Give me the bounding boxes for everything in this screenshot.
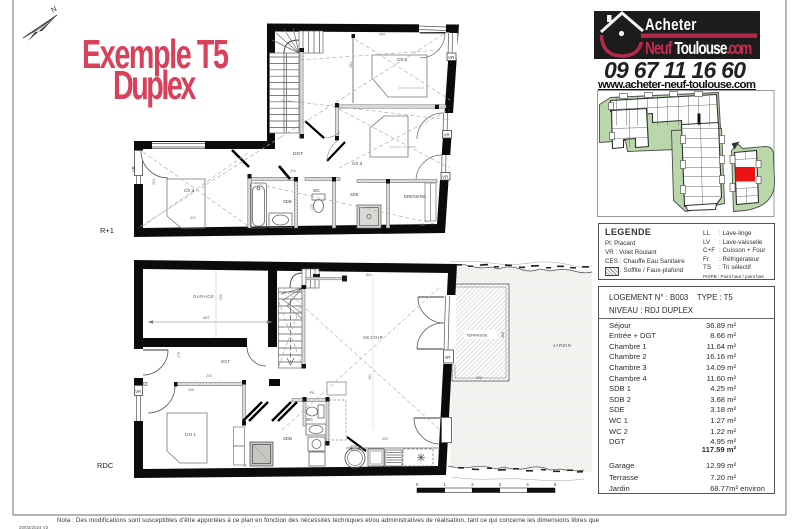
svg-text:1: 1 [444, 482, 447, 487]
svg-text:RDC: RDC [97, 461, 114, 470]
svg-text:WC: WC [306, 417, 313, 422]
svg-text:VR: VR [445, 355, 451, 360]
svg-text:VR: VR [135, 389, 141, 394]
svg-text:250: 250 [219, 294, 223, 300]
svg-text:NeufToulouse.com: NeufToulouse.com [645, 40, 752, 59]
svg-text:461: 461 [368, 374, 372, 380]
svg-text:R+1: R+1 [100, 226, 114, 235]
svg-text:Ch 3: Ch 3 [352, 161, 362, 167]
svg-text:TERRASSE: TERRASSE [466, 333, 488, 338]
svg-text:0: 0 [416, 482, 419, 487]
svg-text:Ch 2: Ch 2 [397, 57, 407, 63]
svg-text:VR: VR [444, 133, 451, 138]
svg-text:801: 801 [366, 273, 372, 277]
svg-text:278: 278 [177, 352, 181, 358]
svg-text:VR: VR [442, 175, 449, 180]
svg-text:3: 3 [499, 482, 502, 487]
svg-text:plafond rampant: plafond rampant [390, 145, 416, 149]
svg-text:368: 368 [188, 388, 194, 392]
svg-text:Acheter: Acheter [645, 16, 697, 35]
svg-text:105: 105 [310, 204, 314, 210]
svg-text:200: 200 [476, 376, 482, 380]
svg-text:5: 5 [554, 482, 557, 487]
svg-text:PL: PL [310, 391, 315, 395]
svg-text:360: 360 [501, 332, 505, 338]
svg-text:SDB: SDB [283, 436, 292, 441]
svg-text:337: 337 [190, 216, 196, 220]
svg-text:plafond rampant: plafond rampant [398, 86, 424, 90]
svg-text:Duplex: Duplex [113, 63, 197, 108]
svg-text:CH 1: CH 1 [185, 432, 196, 438]
svg-text:600: 600 [382, 437, 388, 441]
svg-text:293: 293 [152, 179, 156, 185]
svg-text:4: 4 [526, 482, 529, 487]
svg-text:R: R [244, 464, 247, 468]
svg-text:2: 2 [471, 482, 474, 487]
svg-text:DGT: DGT [221, 359, 230, 364]
svg-text:SDE: SDE [350, 192, 359, 197]
svg-text:DGT: DGT [293, 151, 303, 157]
svg-text:www.acheter-neuf-toulouse.com: www.acheter-neuf-toulouse.com [597, 79, 756, 91]
svg-text:216: 216 [290, 169, 296, 173]
svg-text:400: 400 [379, 33, 385, 37]
svg-text:Ch 4: Ch 4 [184, 188, 194, 194]
svg-text:WC: WC [313, 188, 320, 193]
svg-text:N: N [49, 4, 59, 15]
svg-text:DRESSING: DRESSING [404, 194, 426, 199]
svg-text:195: 195 [419, 223, 425, 227]
svg-text:282: 282 [349, 62, 353, 68]
svg-text:GARAGE: GARAGE [193, 294, 214, 299]
svg-text:VR: VR [131, 166, 136, 172]
svg-text:SDB: SDB [283, 199, 292, 204]
svg-text:VR: VR [448, 55, 455, 60]
svg-text:JARDIN: JARDIN [553, 343, 571, 348]
svg-text:497: 497 [203, 315, 210, 320]
svg-text:200: 200 [206, 374, 212, 378]
